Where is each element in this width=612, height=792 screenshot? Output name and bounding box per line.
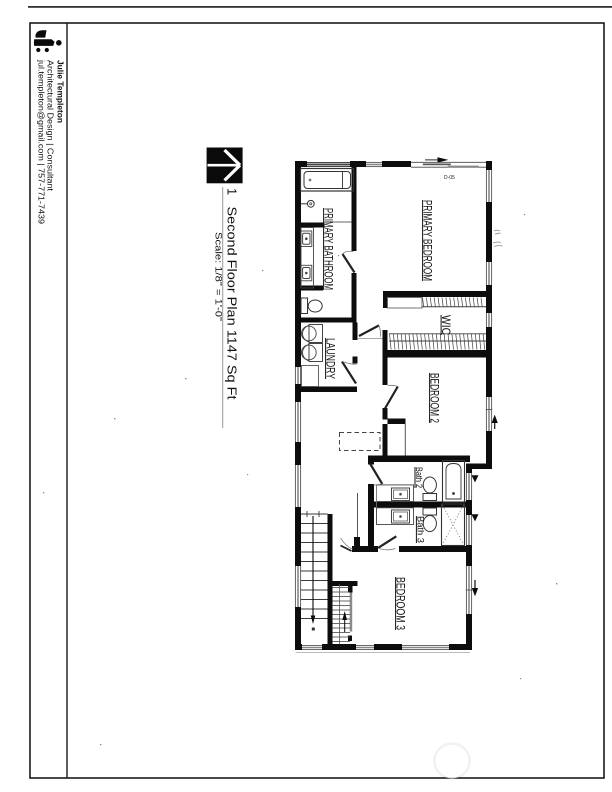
svg-text:1: 1	[225, 188, 240, 195]
svg-text:Julie Templeton: Julie Templeton	[56, 60, 65, 123]
svg-text:Architectural Design | Consult: Architectural Design | Consultant	[46, 60, 55, 192]
svg-text:Second Floor Plan 1147 Sq Ft: Second Floor Plan 1147 Sq Ft	[225, 207, 239, 401]
svg-text:D-05: D-05	[444, 175, 455, 181]
svg-text:jul.templeton@gmail.com | 757-: jul.templeton@gmail.com | 757-771-7439	[37, 59, 46, 224]
svg-text:Scale: 1/8" = 1'-0": Scale: 1/8" = 1'-0"	[213, 232, 224, 321]
